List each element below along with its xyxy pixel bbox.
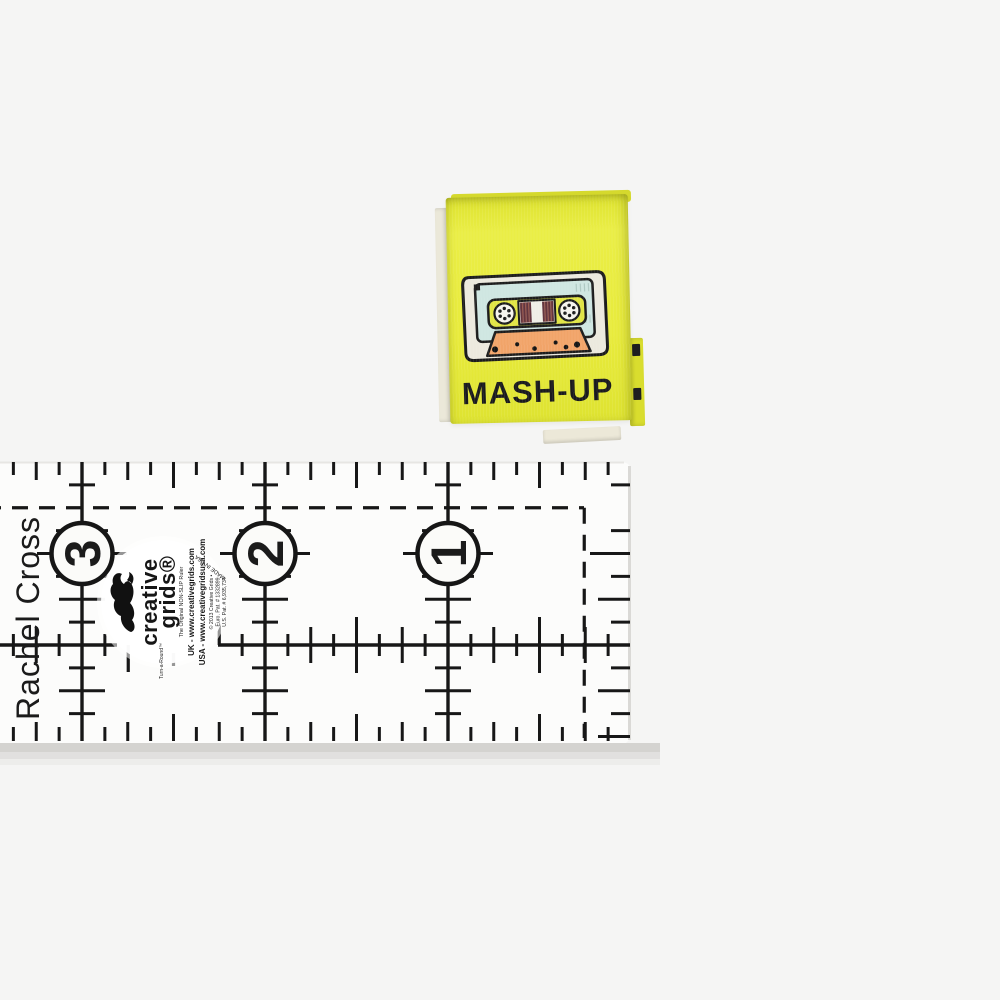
ruler-acrylic-body <box>0 462 631 751</box>
label-underfold-peek <box>543 426 622 444</box>
brand-name-line2: grids® <box>155 556 180 629</box>
ruler-bottom-edge <box>0 743 660 752</box>
quilting-ruler: Turn-a-Round™ creative grids® The Origin… <box>0 450 660 770</box>
cassette-screw <box>474 284 480 290</box>
label-back-print-bit <box>633 388 641 400</box>
brand-turnaround: Turn-a-Round™ <box>159 643 165 679</box>
woven-label: MASH-UP <box>446 194 633 424</box>
inch-number-1: 1 <box>421 540 477 568</box>
cassette-tape-icon <box>459 266 613 367</box>
brand-copyright: © 2013 Creative Grids • <box>208 574 215 629</box>
brand-euro-patent: Euro. Pat. # 1332899 <box>216 577 222 626</box>
brand-subtitle: The Original NON-SLIP Ruler <box>179 566 185 637</box>
brand-us-patent: U.S. Pat. # 6,935,734 <box>222 577 228 627</box>
cassette-base <box>486 328 590 356</box>
label-back-print-bit <box>632 344 640 356</box>
photographer-credit: Rachel Cross <box>10 516 47 720</box>
inch-number-2: 2 <box>238 540 294 568</box>
inch-number-3: 3 <box>55 540 111 568</box>
brand-uk-line: UK - www.creativegrids.com <box>187 548 196 656</box>
label-text: MASH-UP <box>449 371 626 413</box>
product-photo: MASH-UP Turn-a-Round™ <box>0 0 1000 1000</box>
